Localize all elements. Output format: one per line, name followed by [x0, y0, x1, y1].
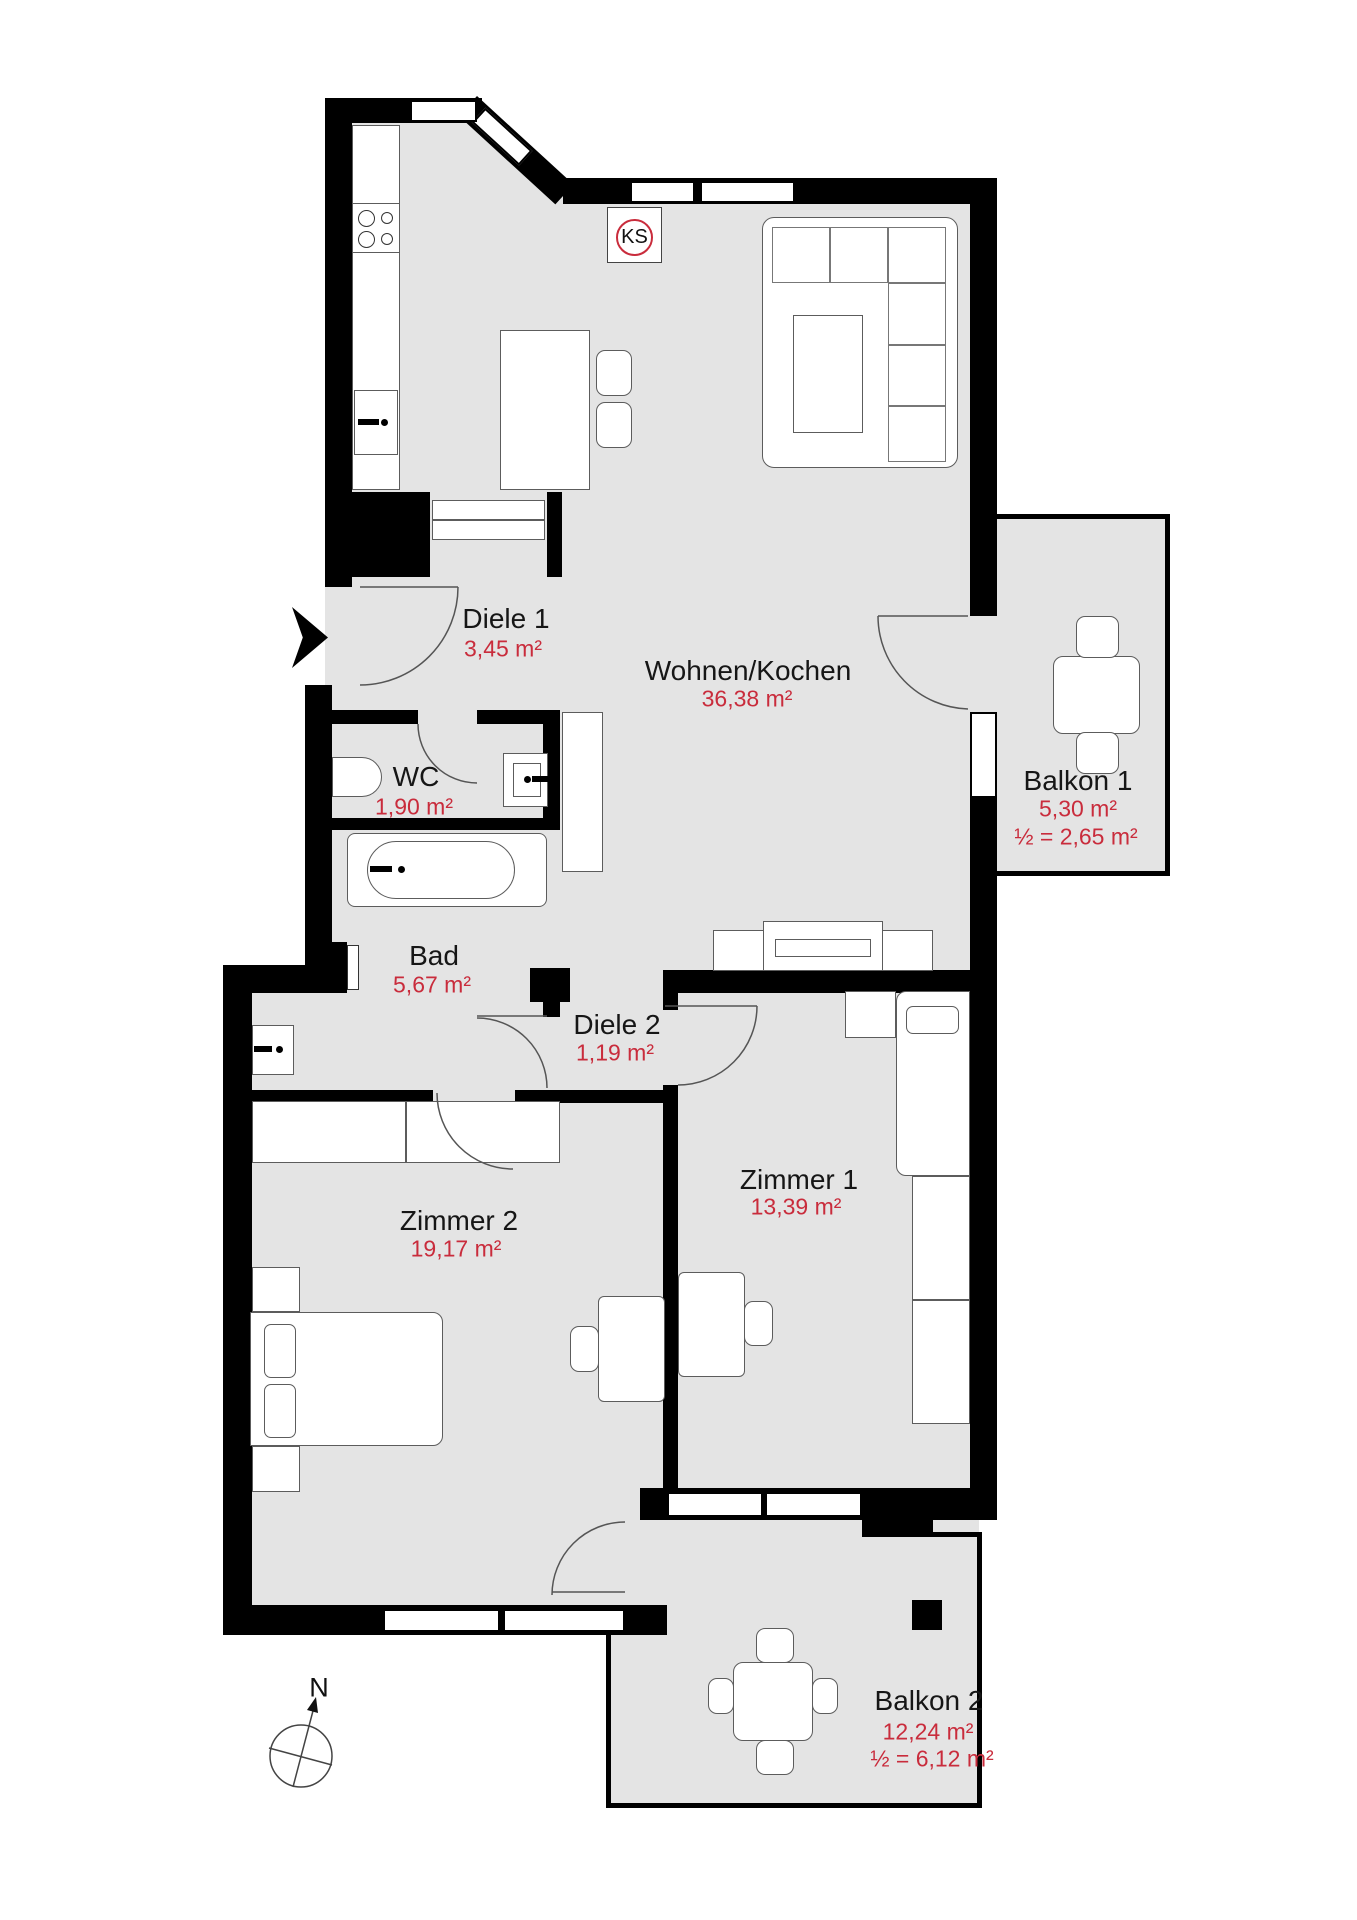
room-area-balkon1: 5,30 m² — [1039, 796, 1117, 823]
room-area-wc: 1,90 m² — [375, 794, 453, 821]
balkon2-door-arc — [552, 1522, 625, 1595]
room-area-wohnen: 36,38 m² — [702, 686, 793, 713]
room-label-wohnen: Wohnen/Kochen — [645, 655, 852, 687]
room-area-diele2: 1,19 m² — [576, 1040, 654, 1067]
room-area-diele1: 3,45 m² — [464, 636, 542, 663]
room-label-diele2: Diele 2 — [573, 1009, 660, 1041]
bad-door-arc — [477, 1016, 547, 1088]
room-label-bad: Bad — [409, 940, 459, 972]
fridge-label: KS — [616, 219, 653, 256]
room-label-balkon1: Balkon 1 — [1024, 765, 1133, 797]
room-label-diele1: Diele 1 — [462, 603, 549, 635]
room-area-bad: 5,67 m² — [393, 972, 471, 999]
compass-north-label: N — [309, 1673, 329, 1704]
room-area-zimmer2: 19,17 m² — [411, 1236, 502, 1263]
entry-door-arc — [360, 587, 458, 685]
room-area-half-balkon1: ½ = 2,65 m² — [1014, 824, 1137, 851]
room-label-zimmer1: Zimmer 1 — [740, 1164, 858, 1196]
room-area-half-balkon2: ½ = 6,12 m² — [870, 1746, 993, 1773]
room-label-zimmer2: Zimmer 2 — [400, 1205, 518, 1237]
room-label-wc: WC — [393, 761, 440, 793]
zimmer1-door-arc — [665, 1006, 757, 1085]
compass-icon — [269, 1707, 332, 1787]
floorplan-canvas: KS N Diele 1 3,45 m² Wohnen/Kochen 36,38… — [0, 0, 1357, 1920]
room-area-balkon2: 12,24 m² — [883, 1719, 974, 1746]
door-arcs — [0, 0, 1357, 1920]
balkon1-door-arc — [878, 616, 968, 709]
room-label-balkon2: Balkon 2 — [875, 1685, 984, 1717]
room-area-zimmer1: 13,39 m² — [751, 1194, 842, 1221]
zimmer2-door-arc — [437, 1093, 513, 1169]
